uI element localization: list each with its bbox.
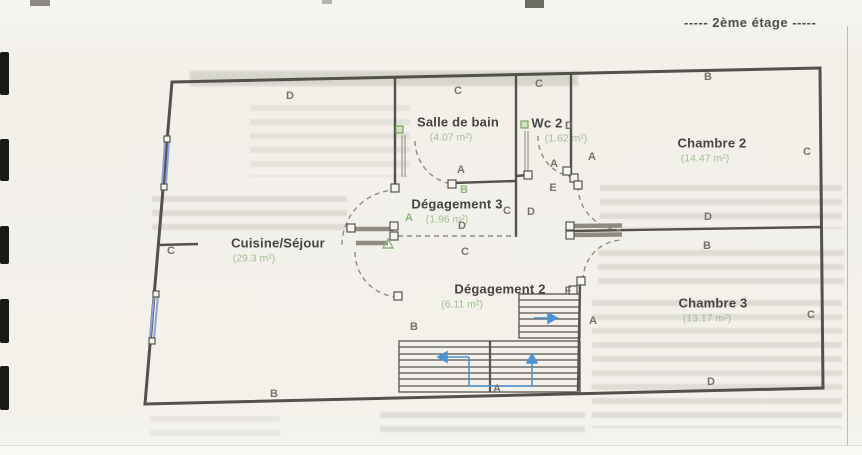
room-label: Salle de bain(4.07 m²) [417,115,499,144]
point-label-d: D [527,206,535,218]
point-label-a: A [493,383,501,395]
room-name: Dégagement 2 [454,282,545,297]
room-area: (4.07 m²) [410,132,492,144]
point-label-c: C [454,85,462,97]
point-label-b: B [270,388,278,400]
point-label-d: D [704,211,712,223]
room-name: Cuisine/Séjour [231,236,325,251]
point-label-a: A [588,151,596,163]
room-label: Chambre 2(14.47 m²) [678,136,747,165]
room-area: (29.3 m²) [207,253,301,265]
point-label-b: B [410,321,418,333]
room-name: Chambre 3 [679,296,748,311]
point-label-b: B [460,184,468,196]
room-name: Chambre 2 [678,136,747,151]
point-label-a: A [589,315,597,327]
room-name: Wc 2 [526,116,569,131]
floor-label: ----- 2ème étage ----- [684,15,816,30]
point-label-c: C [807,309,815,321]
room-label: Dégagement 3(1.96 m²) [411,197,502,226]
point-label-d: D [707,376,715,388]
point-label-b: B [703,240,711,252]
point-label-c: C [803,146,811,158]
point-label-c: C [167,245,175,257]
point-label-c: C [503,205,511,217]
point-label-b: B [704,71,712,83]
room-area: (1.62 m²) [545,133,588,145]
point-label-f: F [565,285,572,297]
scanned-floor-plan-page: { "page": { "floor_label": "----- 2ème é… [0,0,862,455]
room-label: Cuisine/Séjour(29.3 m²) [231,236,325,265]
point-label-e: E [549,182,556,194]
point-label-a: A [550,158,558,170]
point-label-c: C [461,246,469,258]
point-label-a: A [457,164,465,176]
room-label: Dégagement 2(6.11 m²) [454,282,545,311]
room-area: (1.96 m²) [401,214,492,226]
point-label-d: D [286,90,294,102]
point-label-d: D [458,220,466,232]
room-name: Dégagement 3 [411,197,502,212]
room-area: (14.47 m²) [671,153,740,165]
point-label-c: C [535,78,543,90]
point-label-d: D [565,120,573,132]
room-area: (6.11 m²) [416,299,507,311]
room-label: Wc 2(1.62 m²) [526,116,569,145]
room-name: Salle de bain [417,115,499,130]
room-label: Chambre 3(13.17 m²) [679,296,748,325]
room-area: (13.17 m²) [673,313,742,325]
plan-labels-layer: ----- 2ème étage ----- Salle de bain(4.0… [0,0,862,455]
point-label-a: A [405,212,413,224]
